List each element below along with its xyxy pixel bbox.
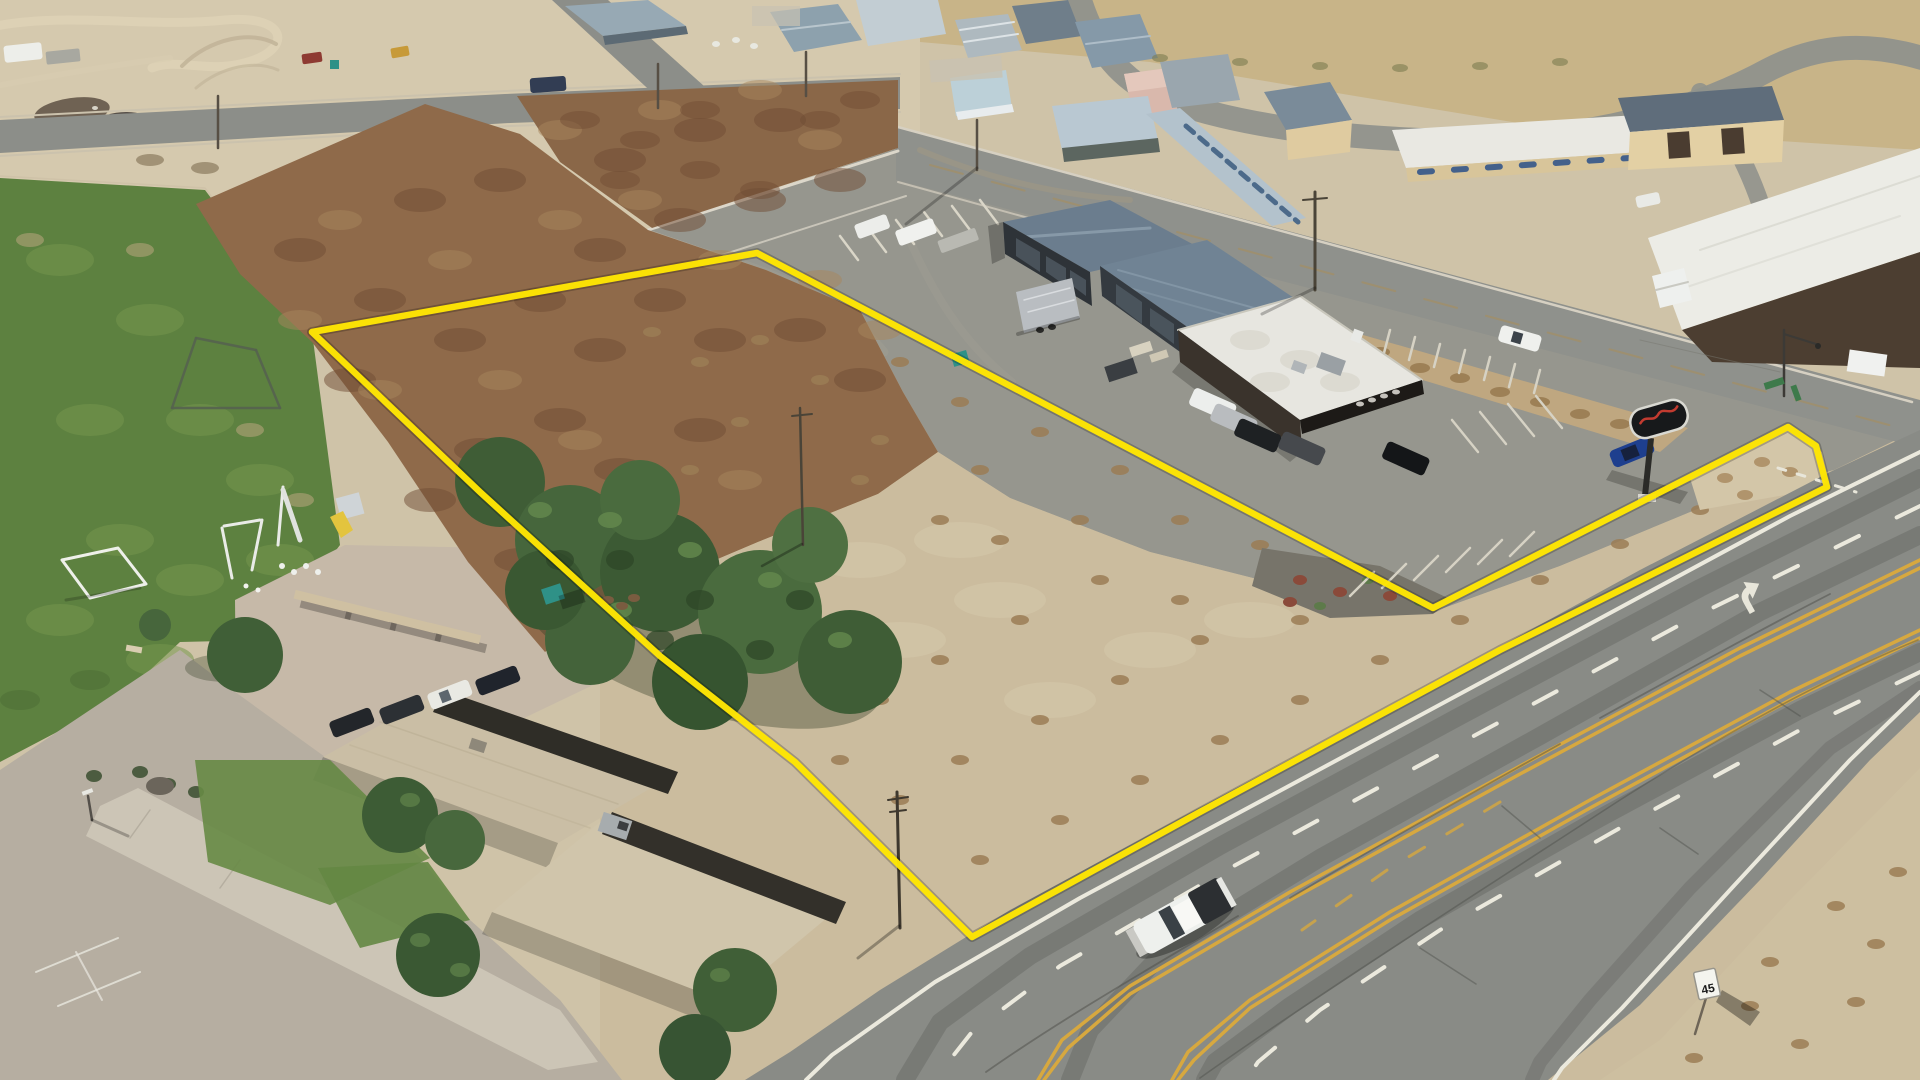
road-van-dark — [530, 76, 567, 93]
brush-tufts — [1531, 575, 1549, 585]
kids-on-grass — [256, 588, 261, 593]
fascia-letters — [1380, 394, 1388, 399]
grass-worn-patches — [236, 423, 264, 437]
canopy-dark-spots — [746, 640, 774, 660]
concrete-pad — [752, 6, 800, 26]
brush-tufts — [1451, 615, 1469, 625]
bush-row — [86, 770, 102, 782]
brush-tufts — [891, 357, 909, 367]
brush-tufts — [931, 515, 949, 525]
brush-tufts — [1371, 655, 1389, 665]
brush-dark-mottle — [834, 368, 886, 392]
fence-weeds — [1312, 62, 1328, 70]
grass-light-patches — [26, 604, 94, 636]
brush-dark-mottle — [274, 238, 326, 262]
brush-tufts — [1291, 615, 1309, 625]
canopy-dark-spots — [606, 550, 634, 570]
brush-dark-mottle — [574, 238, 626, 262]
grass-dark-patches — [0, 690, 40, 710]
brush-light-mottle — [478, 370, 522, 390]
canopy-highlights — [450, 963, 470, 977]
canopy-highlights — [400, 793, 420, 807]
canopy-highlights — [678, 542, 702, 558]
brush-tufts — [1211, 735, 1229, 745]
brush-tufts — [681, 465, 699, 475]
aerial-photo: 45 — [0, 0, 1920, 1080]
brush-dark-mottle — [694, 328, 746, 352]
brush-dark-mottle — [474, 168, 526, 192]
brush-tufts — [1071, 515, 1089, 525]
canopy-highlights — [828, 632, 852, 648]
brush-tufts — [1091, 575, 1109, 585]
corner-tufts — [1717, 473, 1733, 483]
brush-dark-mottle — [814, 168, 866, 192]
fence-weeds — [1152, 54, 1168, 62]
intersection-bins — [732, 37, 740, 43]
roadside-tufts — [1761, 957, 1779, 967]
brush-tufts — [1131, 775, 1149, 785]
corner-tufts — [1754, 457, 1770, 467]
canopy-highlights — [410, 933, 430, 947]
brush-light-mottle — [738, 80, 782, 100]
brush-dark-mottle — [354, 288, 406, 312]
grass-worn-patches — [126, 243, 154, 257]
fence-weeds — [1232, 58, 1248, 66]
brush-tufts — [751, 335, 769, 345]
brush-north-mottle — [740, 181, 780, 199]
brush-north-mottle — [800, 111, 840, 129]
sand-pale-patches — [954, 582, 1046, 618]
fence-weeds — [1472, 62, 1488, 70]
brush-dark-mottle — [574, 338, 626, 362]
canopy-dark-spots — [786, 590, 814, 610]
brush-tufts — [951, 755, 969, 765]
grass-light-patches — [116, 304, 184, 336]
brush-light-mottle — [318, 210, 362, 230]
roadside-tufts — [1685, 1053, 1703, 1063]
bed-red-shrubs — [1333, 587, 1347, 597]
grass-worn-patches — [16, 233, 44, 247]
tree-canopy — [600, 460, 680, 540]
bed-red-shrubs — [1283, 597, 1297, 607]
brush-tufts — [991, 535, 1009, 545]
brush-tufts — [1611, 539, 1629, 549]
brush-dark-mottle — [534, 408, 586, 432]
brush-tufts — [1011, 615, 1029, 625]
street-weed-tufts — [1410, 363, 1430, 373]
brush-dark-mottle — [394, 188, 446, 212]
street-weed-tufts — [1450, 373, 1470, 383]
roadside-tufts — [1847, 997, 1865, 1007]
grass-dark-patches — [70, 670, 110, 690]
brush-light-mottle — [798, 130, 842, 150]
brush-tufts — [643, 327, 661, 337]
canopy-dark-spots — [686, 590, 714, 610]
brush-dark-mottle — [674, 118, 726, 142]
fascia-letters — [1368, 398, 1376, 403]
brush-dark-mottle — [634, 288, 686, 312]
brush-north-mottle — [680, 101, 720, 119]
brush-tufts — [1031, 715, 1049, 725]
porta-toilet — [330, 60, 339, 69]
canopy-highlights — [758, 572, 782, 588]
tree-canopy — [396, 913, 480, 997]
brush-light-mottle — [618, 190, 662, 210]
roadside-tufts — [1827, 901, 1845, 911]
brush-north-mottle — [680, 161, 720, 179]
tree-canopy — [798, 610, 902, 714]
brush-dark-mottle — [594, 148, 646, 172]
tree-canopy — [425, 810, 485, 870]
brush-tufts — [1111, 465, 1129, 475]
corner-tufts — [1737, 490, 1753, 500]
fascia-letters — [1356, 402, 1364, 407]
brush-tufts — [871, 435, 889, 445]
brush-tufts — [1171, 595, 1189, 605]
spring-riders — [291, 569, 297, 575]
brush-dark-mottle — [404, 488, 456, 512]
fence-weeds — [1392, 64, 1408, 72]
street-light-head — [1815, 343, 1821, 349]
fence-weeds — [1552, 58, 1568, 66]
kids-on-grass — [244, 584, 249, 589]
spring-riders — [279, 563, 285, 569]
brush-tufts — [971, 465, 989, 475]
sand-pale-patches — [1004, 682, 1096, 718]
brush-dark-mottle — [654, 208, 706, 232]
intersection-bins — [750, 43, 758, 49]
street-weed-tufts — [1490, 387, 1510, 397]
brush-dark-mottle — [754, 108, 806, 132]
brush-tufts — [811, 375, 829, 385]
bed-green-shrubs — [1314, 602, 1326, 610]
canopy-highlights — [710, 968, 730, 982]
cream-building-door — [1667, 131, 1691, 158]
brush-light-mottle — [428, 250, 472, 270]
brush-north-mottle — [620, 131, 660, 149]
brush-tufts — [1171, 515, 1189, 525]
brush-light-mottle — [558, 430, 602, 450]
brush-tufts — [1111, 675, 1129, 685]
brush-tufts — [851, 475, 869, 485]
brush-tufts — [1051, 815, 1069, 825]
shrub-dots — [191, 162, 219, 174]
brush-north-mottle — [840, 91, 880, 109]
bush-row — [132, 766, 148, 778]
brush-tufts — [1031, 427, 1049, 437]
aerial-photo-stage: 45 — [0, 0, 1920, 1080]
roadside-tufts — [1791, 1039, 1809, 1049]
brush-light-mottle — [638, 100, 682, 120]
brush-tufts — [1191, 635, 1209, 645]
brush-tufts — [691, 357, 709, 367]
wood-debris — [616, 602, 628, 610]
canopy-highlights — [528, 502, 552, 518]
brush-tufts — [971, 855, 989, 865]
fascia-letters — [1392, 390, 1400, 395]
shrub-dots — [136, 154, 164, 166]
brush-tufts — [831, 755, 849, 765]
brush-tufts — [731, 417, 749, 427]
landscape-rock — [146, 777, 174, 795]
sand-pale-patches — [1204, 602, 1296, 638]
cream-building-door — [1721, 127, 1745, 154]
brush-light-mottle — [538, 210, 582, 230]
intersection-bins — [712, 41, 720, 47]
brush-dark-mottle — [434, 328, 486, 352]
grass-light-patches — [156, 564, 224, 596]
sand-pale-patches — [1104, 632, 1196, 668]
spring-riders — [315, 569, 321, 575]
tree-canopy — [139, 609, 171, 641]
brush-tufts — [1251, 540, 1269, 550]
brush-dark-mottle — [774, 318, 826, 342]
street-weed-tufts — [1610, 419, 1630, 429]
bed-red-shrubs — [1293, 575, 1307, 585]
brush-dark-mottle — [674, 418, 726, 442]
canopy-highlights — [598, 512, 622, 528]
grass-light-patches — [26, 244, 94, 276]
grass-light-patches — [56, 404, 124, 436]
tree-canopy — [772, 507, 848, 583]
wood-debris — [628, 594, 640, 602]
gray-building — [1160, 54, 1240, 108]
brush-light-mottle — [718, 470, 762, 490]
tree-canopy — [207, 617, 283, 693]
brush-tufts — [951, 397, 969, 407]
brush-tufts — [1291, 695, 1309, 705]
spring-riders — [303, 563, 309, 569]
brush-tufts — [931, 655, 949, 665]
debris-bits — [92, 106, 98, 110]
roadside-tufts — [1889, 867, 1907, 877]
street-weed-tufts — [1570, 409, 1590, 419]
brush-north-mottle — [560, 111, 600, 129]
white-roof-mottle — [1230, 330, 1270, 350]
brush-north-mottle — [600, 171, 640, 189]
roadside-tufts — [1867, 939, 1885, 949]
